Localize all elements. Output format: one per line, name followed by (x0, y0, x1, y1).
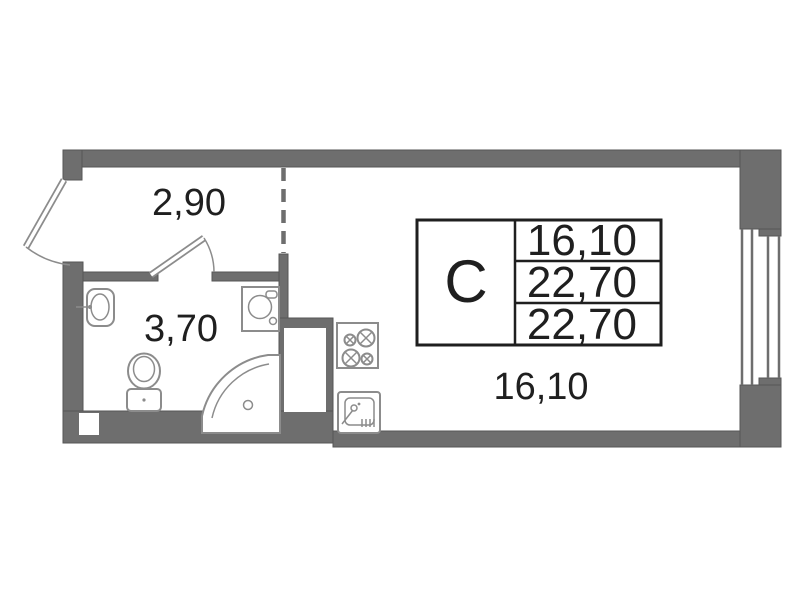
right-wall-top-block (740, 150, 781, 229)
bathroom-dimension-label: 3,70 (144, 308, 218, 350)
entrance-door-leaf-inner (26, 180, 64, 247)
top-left-wall-stub (63, 150, 82, 180)
floor-plan: С 16,10 22,70 22,70 2,90 3,70 16,10 (0, 0, 799, 600)
entrance-door (26, 180, 70, 265)
bottom-wall-bathroom (63, 411, 333, 443)
bathroom-door (151, 238, 214, 275)
bathroom-door-leaf-inner (151, 238, 204, 275)
toilet-button (142, 398, 145, 401)
shower (202, 355, 280, 433)
window-notch-bottom (759, 378, 781, 385)
window (742, 229, 779, 385)
kitchen-sink-dot (358, 403, 361, 406)
window-notch-top (759, 229, 781, 236)
bathroom-top-wall-left (83, 272, 158, 281)
room-dimension-label: 16,10 (493, 366, 588, 408)
hall-dimension-label: 2,90 (152, 182, 226, 224)
bottom-wall-main (333, 431, 781, 447)
toilet-bowl (128, 354, 160, 389)
bathroom-right-wall (279, 254, 288, 318)
top-wall (63, 150, 740, 167)
unit-type-label: С (444, 248, 487, 315)
bathroom-top-wall-right (212, 272, 281, 281)
info-table: С 16,10 22,70 22,70 (417, 216, 661, 349)
floor-plan-drawing: С 16,10 22,70 22,70 2,90 3,70 16,10 (0, 0, 799, 600)
sink-tap-knob (88, 305, 92, 309)
right-wall-bottom-block (740, 385, 781, 447)
shower-tray (202, 355, 280, 433)
stove (337, 323, 378, 368)
corner-shaft (79, 413, 99, 435)
bathroom-door-swing-arc (204, 238, 214, 272)
total-area-value-2: 22,70 (527, 300, 637, 349)
shaft-opening (284, 328, 326, 412)
washing-machine (242, 287, 279, 331)
toilet (127, 354, 161, 412)
kitchen-sink (338, 392, 380, 433)
